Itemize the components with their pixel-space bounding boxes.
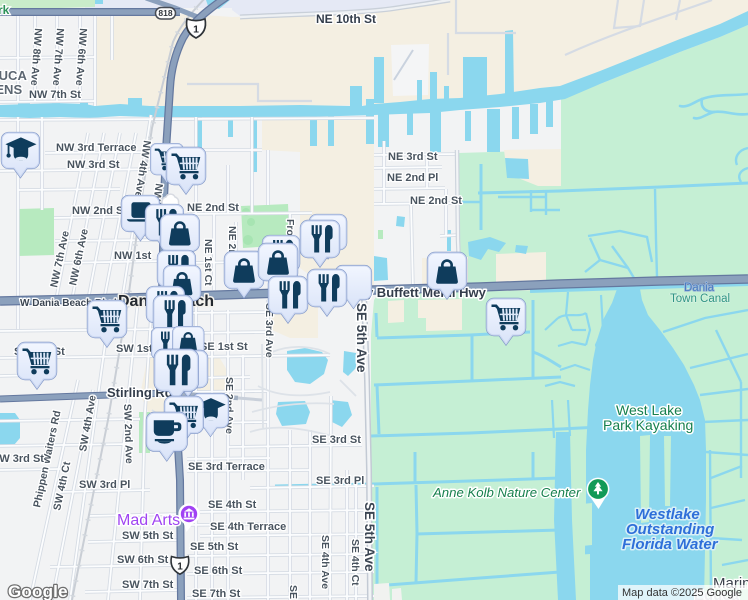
svg-text:NE 2nd St: NE 2nd St [410, 195, 462, 207]
svg-text:SW 3rd St: SW 3rd St [0, 453, 44, 465]
svg-text:NE 10th St: NE 10th St [316, 12, 376, 26]
svg-text:NW 3rd Terrace: NW 3rd Terrace [56, 142, 137, 154]
svg-text:SE 3rd Terrace: SE 3rd Terrace [188, 461, 265, 473]
svg-text:SE 5th St: SE 5th St [190, 541, 239, 553]
svg-text:SW 3rd Pl: SW 3rd Pl [79, 479, 130, 491]
svg-text:rk: rk [0, 3, 10, 17]
svg-text:NW 3rd St: NW 3rd St [67, 159, 120, 171]
svg-text:NE 2nd Pl: NE 2nd Pl [387, 172, 438, 184]
svg-text:SE 4th Terrace: SE 4th Terrace [210, 521, 286, 533]
svg-text:NE 2nd St: NE 2nd St [187, 202, 239, 214]
svg-text:SW 2nd Ave: SW 2nd Ave [121, 404, 135, 464]
svg-text:SE 5th Ave: SE 5th Ave [354, 303, 369, 373]
svg-text:Town Canal: Town Canal [670, 293, 730, 305]
svg-text:Fro: Fro [284, 219, 296, 236]
svg-text:SE 1st St: SE 1st St [200, 341, 248, 353]
svg-text:SE: SE [287, 585, 299, 599]
svg-text:SW 5th St: SW 5th St [122, 530, 174, 542]
svg-text:1: 1 [177, 562, 183, 573]
svg-text:SW 1st: SW 1st [116, 343, 153, 355]
svg-text:SW 6th St: SW 6th St [117, 554, 169, 566]
svg-text:Mad Arts: Mad Arts [117, 512, 180, 529]
svg-text:SE 4th Ave: SE 4th Ave [319, 535, 331, 589]
svg-text:NW 7th St: NW 7th St [29, 89, 81, 101]
svg-text:DENS: DENS [0, 82, 22, 97]
svg-text:NW 2nd St: NW 2nd St [72, 205, 127, 217]
svg-text:Florida Water: Florida Water [622, 536, 719, 553]
svg-text:Park Kayaking: Park Kayaking [603, 417, 693, 433]
svg-text:SE 6th St: SE 6th St [194, 565, 243, 577]
svg-text:YUCA: YUCA [0, 68, 27, 83]
svg-text:NE 1st Ct: NE 1st Ct [202, 239, 214, 286]
svg-text:SE 4th St: SE 4th St [208, 499, 257, 511]
svg-text:818: 818 [158, 8, 172, 18]
svg-text:Map data ©2025 Google: Map data ©2025 Google [622, 587, 742, 599]
svg-text:NE 3rd St: NE 3rd St [388, 151, 438, 163]
svg-text:SE 3rd St: SE 3rd St [312, 434, 361, 446]
svg-text:SW 7th St: SW 7th St [122, 579, 174, 591]
svg-text:SE 4th Ct: SE 4th Ct [349, 539, 361, 586]
svg-text:Anne Kolb Nature Center: Anne Kolb Nature Center [432, 485, 581, 500]
svg-text:SE 7th St: SE 7th St [192, 588, 241, 600]
svg-text:1: 1 [193, 24, 199, 36]
svg-text:West Lake: West Lake [616, 402, 682, 418]
svg-text:SE 5th Ave: SE 5th Ave [362, 502, 377, 572]
svg-text:Google: Google [8, 582, 68, 600]
svg-text:SE 3rd Pl: SE 3rd Pl [316, 475, 364, 487]
svg-text:NW 1st: NW 1st [114, 250, 152, 262]
